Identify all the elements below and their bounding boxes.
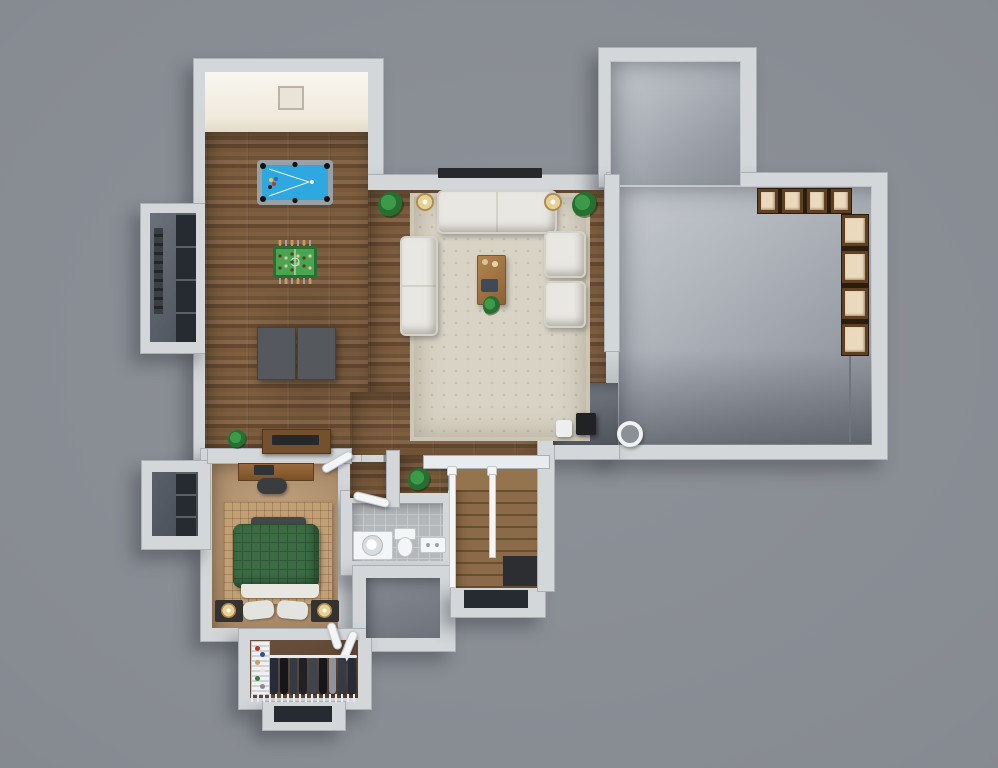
potted-plant-living-left [378, 192, 404, 218]
storage-upper-floor [610, 61, 741, 186]
stair-rail-left [449, 474, 456, 588]
garment [299, 658, 307, 694]
shoe [255, 660, 260, 665]
nightstand-lamp-right [317, 603, 332, 618]
lookout-frame [278, 86, 304, 110]
living-right-wall [604, 174, 620, 352]
coffee-table-plant [483, 296, 500, 316]
folded-table-panel-right [297, 327, 336, 380]
wall-conduit [849, 356, 851, 442]
closet-well-recess [274, 706, 332, 722]
sofa-top [437, 190, 557, 234]
shoe [260, 668, 265, 673]
shoe [255, 646, 260, 651]
shoe-rack [251, 641, 270, 695]
hanging-clothes [269, 658, 357, 694]
shoe [260, 684, 265, 689]
stair-void [503, 556, 537, 586]
register-dot [426, 543, 430, 547]
shoe [260, 652, 265, 657]
shelf-unit [830, 188, 852, 214]
shelf-unit [841, 214, 869, 247]
bed-pillow-left [242, 599, 275, 620]
floor-lamp-2 [544, 193, 562, 211]
stair-rail-mid [489, 474, 496, 558]
garment [319, 658, 327, 694]
wall-register [420, 537, 446, 553]
floor-plan-render [0, 0, 998, 768]
garment [329, 658, 337, 694]
garment [348, 658, 356, 694]
nightstand-lamp-left [221, 603, 236, 618]
white-bin [556, 420, 572, 437]
wall-tv [438, 168, 542, 178]
coffee-table-mug-2 [492, 261, 498, 267]
foosball-table [272, 240, 318, 284]
shelf-unit [806, 188, 828, 214]
shelf-unit [841, 287, 869, 320]
storage-floor-dark-overlay [553, 350, 872, 445]
coffee-table-tray [481, 279, 498, 292]
register-dot [435, 543, 439, 547]
garment [290, 658, 298, 694]
shoe [255, 676, 260, 681]
sofa-left [400, 236, 438, 336]
shelf-unit [841, 250, 869, 283]
well-upper-window [176, 213, 196, 342]
floor-drain [617, 421, 643, 447]
media-console-tv [272, 435, 319, 445]
garment [280, 658, 288, 694]
folded-game-table [257, 327, 334, 378]
stair-well-recess [464, 590, 528, 608]
potted-plant-living-right [572, 192, 598, 218]
well-upper-ladder [154, 228, 163, 314]
bed-duvet [233, 524, 319, 588]
mechanical-floor [366, 578, 440, 638]
wire-shelf [251, 694, 357, 702]
potted-plant-hallway [408, 468, 431, 492]
desk-laptop [254, 465, 274, 475]
armchair-1 [544, 231, 586, 278]
black-bin [576, 413, 596, 435]
folded-table-panel-left [257, 327, 296, 380]
coffee-table-mug-1 [482, 259, 488, 265]
pool-table [257, 160, 333, 205]
shelf-unit [781, 188, 803, 214]
shelf-unit [757, 188, 779, 214]
storage-shelves-top [757, 188, 852, 214]
garment [270, 658, 278, 694]
garment [338, 658, 346, 694]
floor-lamp-1 [416, 193, 434, 211]
shelf-unit [841, 323, 869, 356]
garment [309, 658, 317, 694]
potted-plant-console [228, 430, 247, 449]
storage-shelves-right [841, 214, 869, 356]
toilet-bowl [397, 537, 413, 557]
armchair-2 [544, 281, 586, 328]
bed-sheet-fold [241, 584, 319, 598]
well-lower-window [176, 472, 196, 536]
desk-chair [257, 478, 287, 494]
bed-pillow-right [276, 600, 308, 621]
vanity-sink [362, 535, 383, 556]
